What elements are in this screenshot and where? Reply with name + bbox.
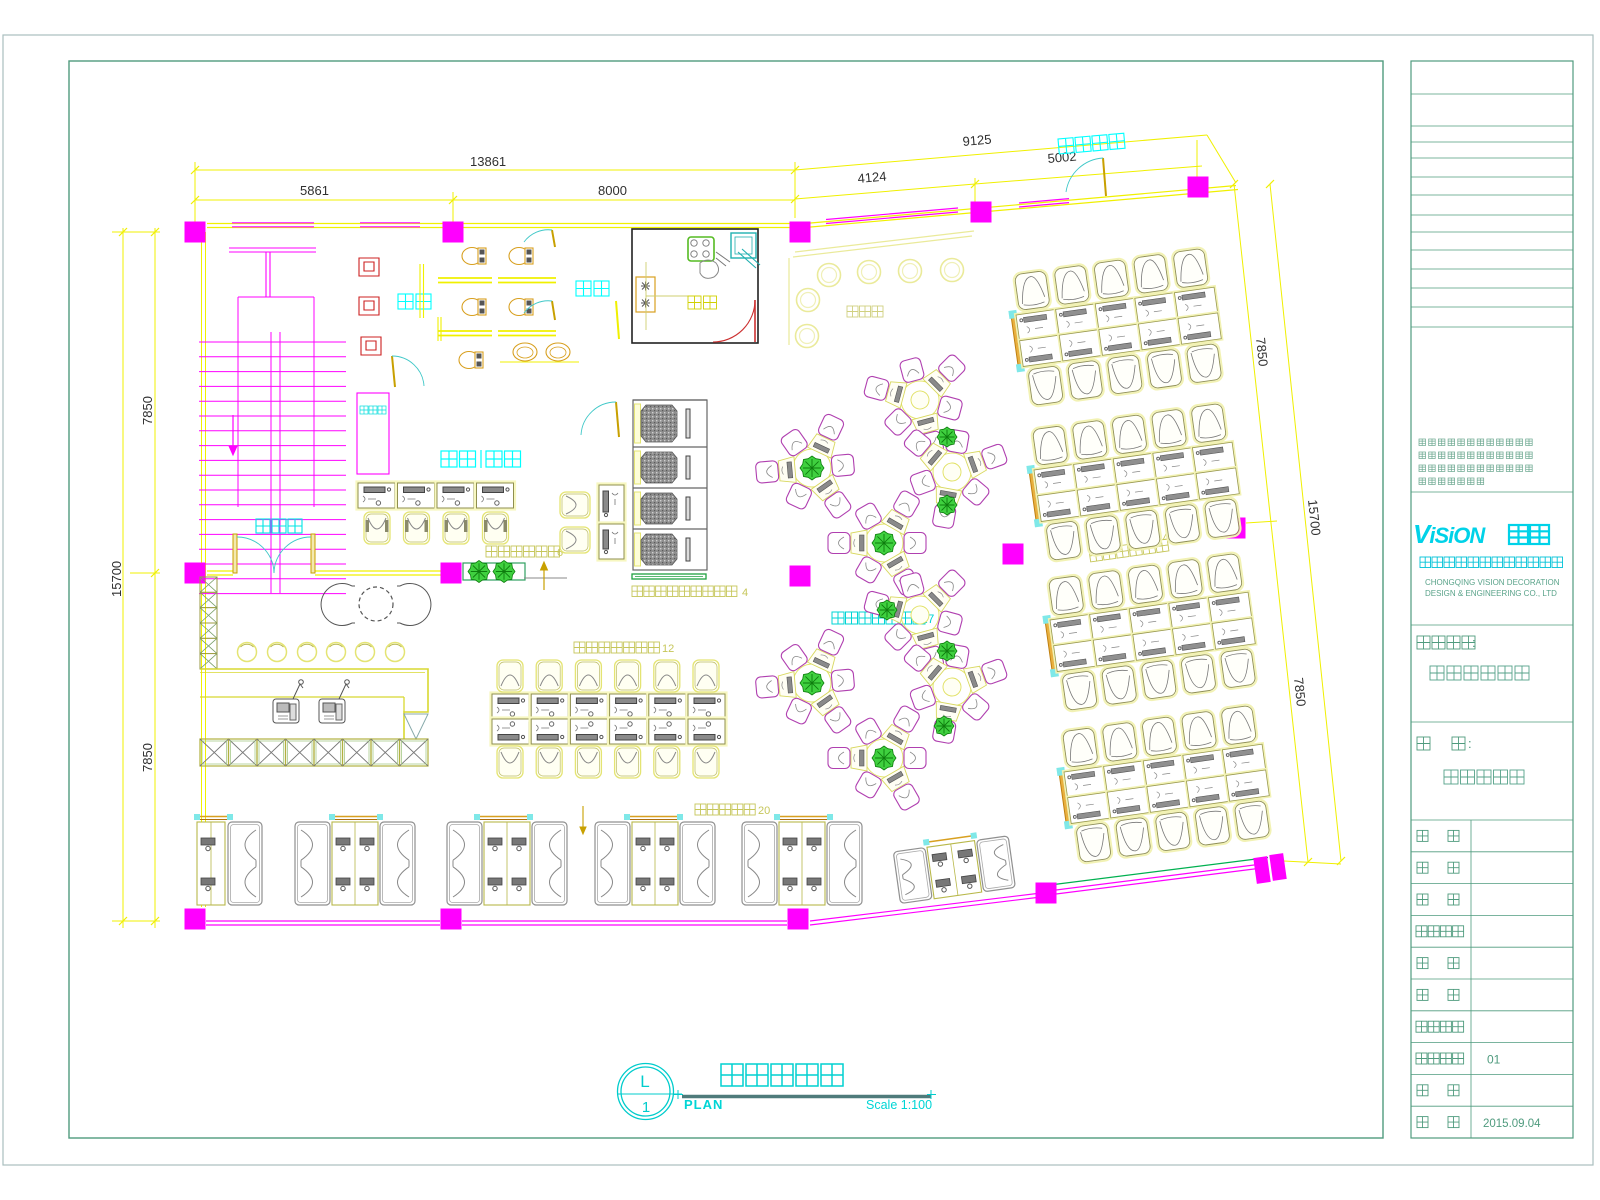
svg-text:20: 20	[758, 805, 770, 817]
svg-text:CHONGQING VISION DECORATION: CHONGQING VISION DECORATION	[1425, 578, 1560, 587]
svg-text:DESIGN & ENGINEERING CO., LTD: DESIGN & ENGINEERING CO., LTD	[1425, 589, 1557, 598]
svg-text:7850: 7850	[1291, 677, 1309, 707]
svg-text:PLAN: PLAN	[684, 1097, 723, 1112]
svg-text:9125: 9125	[962, 132, 992, 149]
svg-text:8000: 8000	[598, 183, 627, 198]
svg-text:4: 4	[742, 587, 748, 599]
svg-text:1: 1	[642, 1099, 650, 1116]
svg-text::: :	[1472, 635, 1476, 650]
svg-text:L: L	[640, 1072, 649, 1091]
svg-text:5861: 5861	[300, 183, 329, 198]
svg-text:ViSiON: ViSiON	[1413, 519, 1486, 549]
svg-text::: :	[1468, 736, 1472, 751]
svg-text:5002: 5002	[1047, 149, 1077, 166]
svg-text:Scale 1:100: Scale 1:100	[866, 1098, 932, 1112]
svg-text:4124: 4124	[857, 169, 887, 186]
svg-text:01: 01	[1487, 1053, 1501, 1067]
svg-text:15700: 15700	[109, 561, 124, 597]
svg-text:7850: 7850	[140, 743, 155, 772]
svg-text:13861: 13861	[470, 154, 506, 169]
svg-text:7850: 7850	[140, 396, 155, 425]
svg-text:7850: 7850	[1253, 337, 1271, 367]
svg-text:2015.09.04: 2015.09.04	[1483, 1118, 1541, 1130]
svg-text:12: 12	[662, 643, 674, 655]
